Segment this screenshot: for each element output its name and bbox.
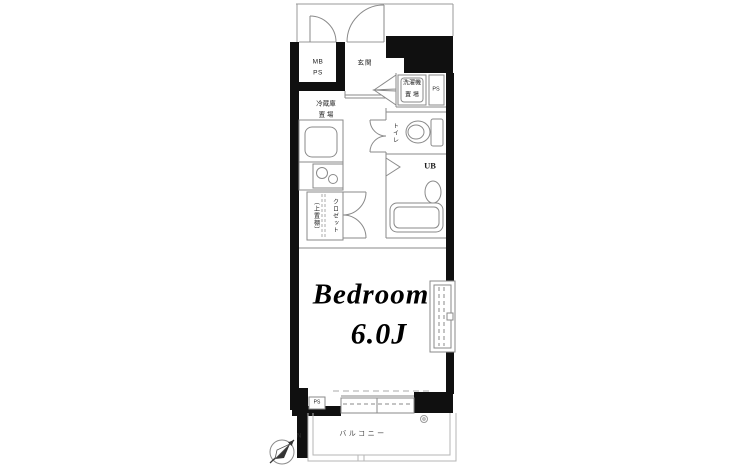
toilet-tank (431, 119, 443, 146)
floorplan-drawing (0, 0, 730, 470)
compass (270, 440, 294, 464)
toilet-door-arc-upper (370, 120, 386, 136)
compass-north-label: N (297, 432, 301, 443)
washer-label-line2: 置 場 (405, 91, 419, 102)
meter-box-label-line1: MB (313, 57, 324, 68)
west-wall (290, 42, 299, 410)
closet-door-arc-lower (343, 215, 366, 238)
east-wall-upper (446, 73, 454, 282)
east-window-handle (447, 313, 453, 320)
ps-top-label: PS (432, 85, 439, 96)
entrance-door-arc (347, 5, 384, 42)
unit-bath-label: UB (424, 161, 436, 172)
entry-doors (310, 5, 384, 42)
wash-basin (425, 181, 441, 203)
stove-burner-large (317, 168, 328, 179)
meter-box-door-arc (310, 16, 336, 42)
toilet-room (370, 108, 446, 238)
closet-note-label: （上置棚） (312, 199, 319, 234)
bathtub-inner (394, 207, 439, 228)
toilet-label: トイレ (391, 123, 398, 144)
south-east-wall-block (414, 392, 453, 413)
balcony-label: バルコニー (339, 429, 386, 440)
floorplan: MB PS 玄関 洗濯機 置 場 PS 冷蔵庫 置 場 トイレ UB クロゼット… (0, 0, 730, 470)
fridge-label-line1: 冷蔵庫 (316, 99, 336, 110)
bedroom-size-label: 6.0J (351, 329, 408, 340)
balcony-drain (421, 416, 428, 423)
toilet-door-arc-lower (370, 136, 386, 152)
meter-box-label-line2: PS (313, 68, 323, 79)
kitchen (299, 120, 343, 190)
closet-label: クロゼット (331, 199, 338, 234)
north-east-wall-block (404, 36, 453, 73)
toilet-bowl (406, 121, 430, 143)
meter-box-bottom-wall (290, 82, 345, 91)
stove-burner-small (329, 175, 338, 184)
entrance-label: 玄関 (358, 58, 373, 69)
balcony-partition-wall (297, 388, 308, 458)
east-window (430, 281, 455, 352)
washer-door-upper (374, 75, 396, 90)
ps-bottom-label: PS (314, 398, 321, 409)
closet-door-arc-upper (343, 192, 366, 215)
bath-door (386, 158, 400, 176)
bedroom-name-label: Bedroom (313, 290, 430, 301)
unit-bath-room (386, 158, 446, 238)
east-wall-lower (446, 351, 454, 394)
kitchen-sink (305, 127, 337, 157)
fridge-label-line2: 置 場 (319, 110, 334, 121)
washer-label-line1: 洗濯機 (403, 79, 421, 90)
